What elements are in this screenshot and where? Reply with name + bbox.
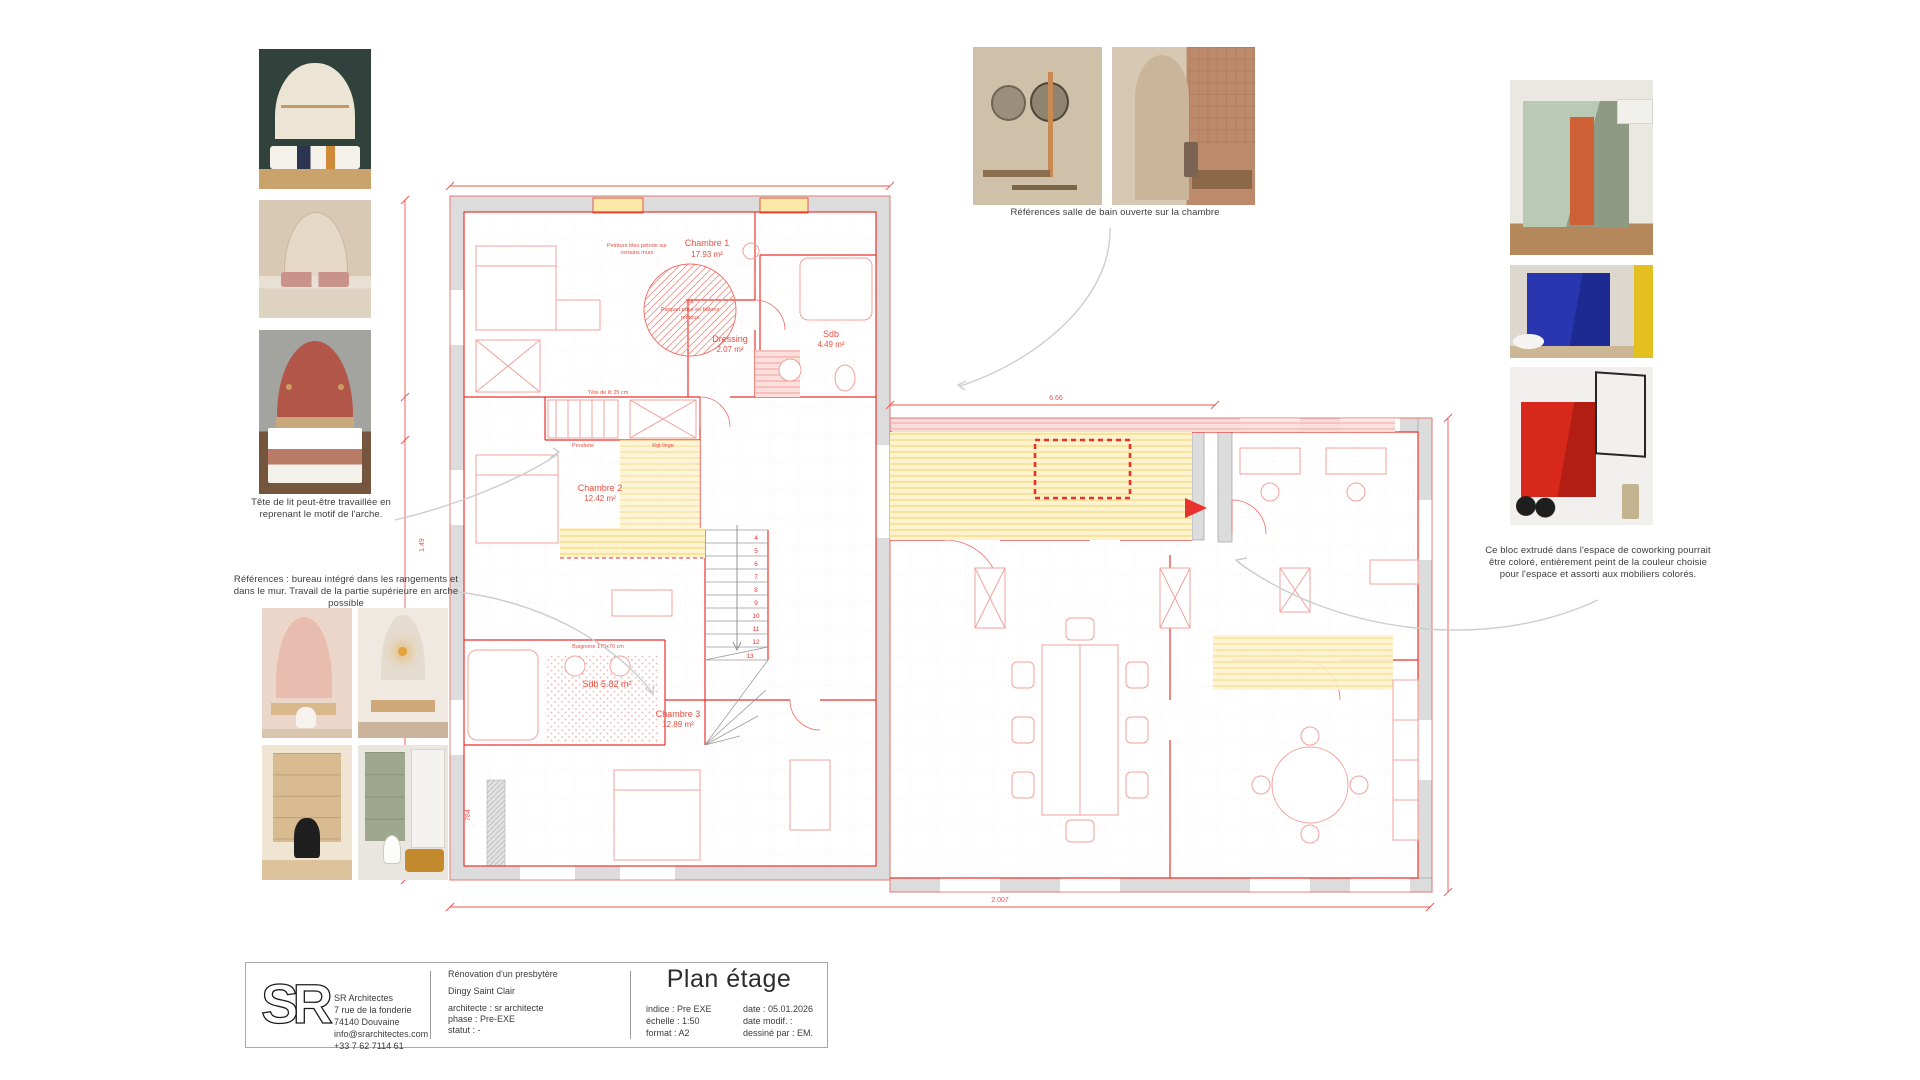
svg-text:certains murs: certains murs xyxy=(620,250,653,256)
caption-desk-reference: Références : bureau intégré dans les ran… xyxy=(230,574,462,610)
room-label-sdb2: Sdb 5.82 m² xyxy=(582,679,631,689)
project-location: Dingy Saint Clair xyxy=(448,986,558,997)
room-label-chambre3: Chambre 3 xyxy=(656,709,701,719)
room-label-chambre2: Chambre 2 xyxy=(578,483,623,493)
svg-text:rompus: rompus xyxy=(681,315,700,321)
note-floor: Sol: xyxy=(685,299,695,305)
note-paint: Peinture bleu pétrole sur xyxy=(607,243,667,249)
photo-green-shelf-desk xyxy=(358,745,448,880)
caption-headboard-reference: Tête de lit peut-être travaillée en repr… xyxy=(238,497,404,521)
sr-logo-text: SR xyxy=(261,972,332,1035)
stair-step-number: 13 xyxy=(746,653,754,660)
caption-bathroom-reference: Références salle de bain ouverte sur la … xyxy=(1000,207,1230,219)
sheet-title: Plan étage xyxy=(638,965,820,994)
company-address1: 7 rue de la fonderie xyxy=(334,1004,428,1016)
dim-bottom: 2.007 xyxy=(991,897,1009,904)
photo-bathroom-arch-shower xyxy=(1112,47,1255,205)
svg-text:17.93 m²: 17.93 m² xyxy=(691,250,723,259)
sheet-drawn-by: dessiné par : EM. xyxy=(743,1027,813,1039)
room-label-chambre1: Chambre 1 xyxy=(685,238,730,248)
project-title: Rénovation d'un presbytère xyxy=(448,969,558,980)
photo-bathroom-round-mirrors xyxy=(973,47,1102,205)
note-rgt-linge: Rgt linge xyxy=(652,443,674,449)
title-block: SR SR Architectes 7 rue de la fonderie 7… xyxy=(245,962,828,1048)
photo-bedroom-arch-terracotta xyxy=(259,330,371,494)
svg-text:Parquet posé en bâtons: Parquet posé en bâtons xyxy=(661,307,720,313)
note-headboard: Tête de lit 25 cm xyxy=(588,390,629,396)
sheet-date: date : 05.01.2026 xyxy=(743,1003,813,1015)
sheet-date-modif: date modif. : xyxy=(743,1015,813,1027)
stair-step-number: 4 xyxy=(754,535,758,542)
photo-pink-arch-desk xyxy=(262,608,352,738)
company-address2: 74140 Douvaine xyxy=(334,1016,428,1028)
note-penderie: Penderie xyxy=(572,443,594,449)
sheet-scale: échelle : 1:50 xyxy=(646,1015,712,1027)
svg-text:4.49 m²: 4.49 m² xyxy=(817,340,844,349)
svg-text:12.42 m²: 12.42 m² xyxy=(584,494,616,503)
stair-step-number: 9 xyxy=(754,600,758,607)
photo-sconce-desk-nook xyxy=(358,608,448,738)
presentation-sheet: 4 5 6 7 8 9 10 11 12 13 Chambre 1 17.93 … xyxy=(0,0,1920,1080)
company-email: info@srarchitectes.com xyxy=(334,1028,428,1040)
project-phase: phase : Pre-EXE xyxy=(448,1014,558,1025)
sheet-meta-left: indice : Pre EXE échelle : 1:50 format :… xyxy=(646,1003,712,1039)
company-phone: +33 7 62 7114 61 xyxy=(334,1040,428,1052)
note-bathtub: Baignoire 170x70 cm xyxy=(572,644,624,650)
caption-coworking-block-reference: Ce bloc extrudé dans l'espace de coworki… xyxy=(1482,545,1714,581)
room-label-dressing: Dressing xyxy=(712,334,748,344)
photo-bed-arch-niche-dark xyxy=(259,49,371,189)
stair-step-number: 8 xyxy=(754,587,758,594)
title-block-divider xyxy=(430,971,431,1039)
sheet-meta-right: date : 05.01.2026 date modif. : dessiné … xyxy=(743,1003,813,1039)
dim-left-a: 784 xyxy=(465,809,472,821)
sr-logo: SR xyxy=(254,971,334,1041)
stair-step-number: 6 xyxy=(754,561,758,568)
photo-wood-desk-nook xyxy=(262,745,352,880)
stair-step-number: 7 xyxy=(754,574,758,581)
stair-step-number: 11 xyxy=(753,626,760,633)
photo-bedroom-arch-beige xyxy=(259,200,371,318)
stair-step-number: 10 xyxy=(752,613,760,620)
photo-blue-block-yellow-wall xyxy=(1510,265,1653,358)
svg-text:2.07 m²: 2.07 m² xyxy=(716,345,743,354)
room-label-sdb1: Sdb xyxy=(823,329,839,339)
photo-green-block-orange-door xyxy=(1510,80,1653,255)
stair-step-number: 5 xyxy=(754,548,758,555)
title-block-divider xyxy=(630,971,631,1039)
sheet-format: format : A2 xyxy=(646,1027,712,1039)
dim-left-b: 1.49 xyxy=(419,538,426,552)
company-info: SR Architectes 7 rue de la fonderie 7414… xyxy=(334,992,428,1052)
company-name: SR Architectes xyxy=(334,992,428,1004)
sheet-indice: indice : Pre EXE xyxy=(646,1003,712,1015)
project-architect: architecte : sr architecte xyxy=(448,1003,558,1014)
project-info: Rénovation d'un presbytère Dingy Saint C… xyxy=(448,969,558,1036)
dim-top-right: 6.66 xyxy=(1049,395,1063,402)
svg-text:12.89 m²: 12.89 m² xyxy=(662,720,694,729)
project-status: statut : - xyxy=(448,1025,558,1036)
photo-red-block-wireframe xyxy=(1510,367,1653,525)
stair-step-number: 12 xyxy=(752,639,760,646)
